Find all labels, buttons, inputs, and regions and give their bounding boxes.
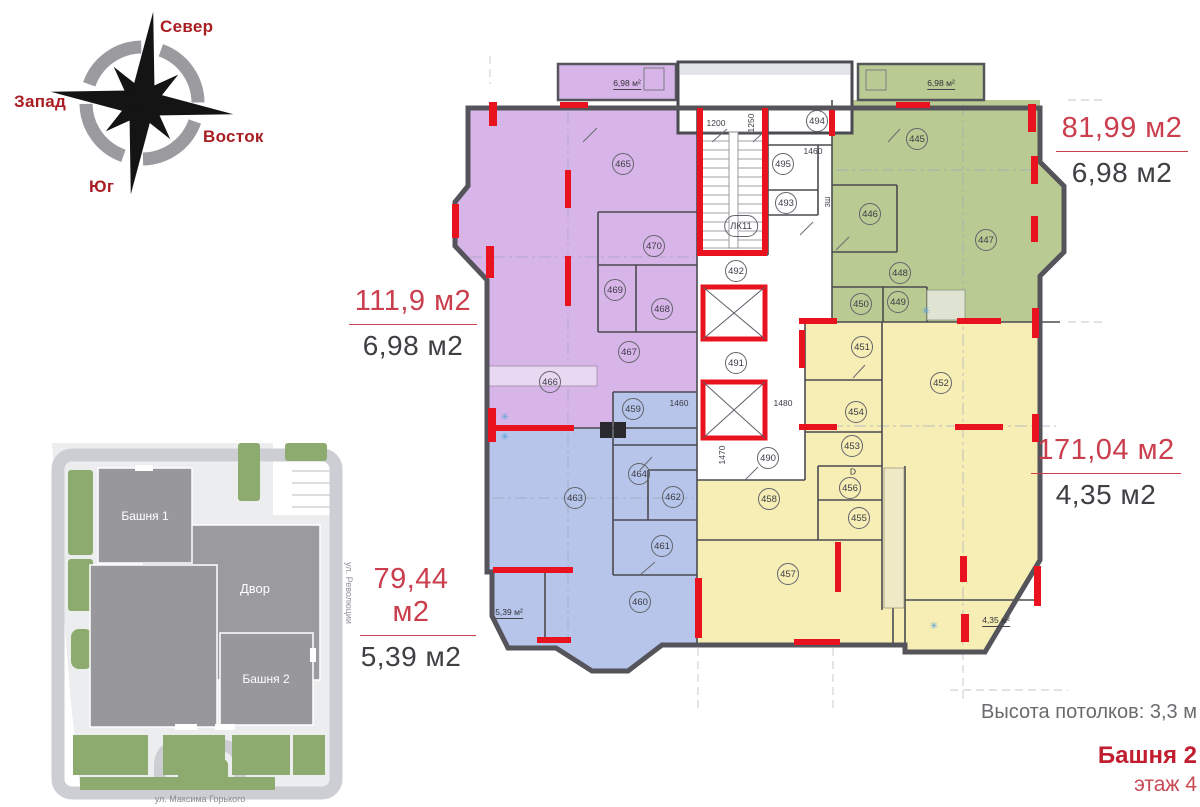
green-area-value: 81,99 м2 xyxy=(1056,112,1189,152)
green-apartment-area xyxy=(832,100,1064,322)
floor-title: этаж 4 xyxy=(1134,773,1197,797)
street-bottom-label: ул. Максима Горького xyxy=(155,794,246,804)
site-yard-label: Двор xyxy=(240,581,270,596)
site-tower2-label: Башня 2 xyxy=(242,672,290,686)
floorplan-page: { "palette":{"purple":"#d8b5e8","green":… xyxy=(0,0,1200,807)
compass-east-label: Восток xyxy=(203,127,264,147)
compass-south-label: Юг xyxy=(89,177,114,197)
street-right-label: ул. Революции xyxy=(344,562,354,624)
elevator-shafts xyxy=(703,287,765,438)
purple-area-value: 111,9 м2 xyxy=(349,285,477,325)
yellow-balcony-value: 4,35 м2 xyxy=(1026,479,1186,511)
floor-plan xyxy=(430,45,1110,725)
blue-area-value: 79,44 м2 xyxy=(346,563,476,636)
callout-green-apartment: 81,99 м2 6,98 м2 xyxy=(1052,112,1192,189)
compass-north-label: Север xyxy=(160,17,213,37)
callout-yellow-apartment: 171,04 м2 4,35 м2 xyxy=(1026,434,1186,511)
staircase xyxy=(702,132,766,248)
purple-balcony-value: 6,98 м2 xyxy=(348,330,478,362)
compass-star xyxy=(39,8,244,206)
blue-balcony-value: 5,39 м2 xyxy=(346,641,476,673)
yellow-area-value: 171,04 м2 xyxy=(1031,434,1180,474)
blue-apartment-area xyxy=(487,392,697,671)
site-plan: Башня 1 Двор Башня 2 ул. Революции ул. М… xyxy=(40,443,360,807)
green-balcony-value: 6,98 м2 xyxy=(1052,157,1192,189)
site-tower1-label: Башня 1 xyxy=(121,509,169,523)
yellow-apartment-area xyxy=(697,322,1040,652)
compass-west-label: Запад xyxy=(14,92,66,112)
ceiling-height-note: Высота потолков: 3,3 м xyxy=(981,701,1197,724)
callout-purple-apartment: 111,9 м2 6,98 м2 xyxy=(348,285,478,362)
callout-blue-apartment: 79,44 м2 5,39 м2 xyxy=(346,563,476,673)
tower-title: Башня 2 xyxy=(1098,742,1197,770)
